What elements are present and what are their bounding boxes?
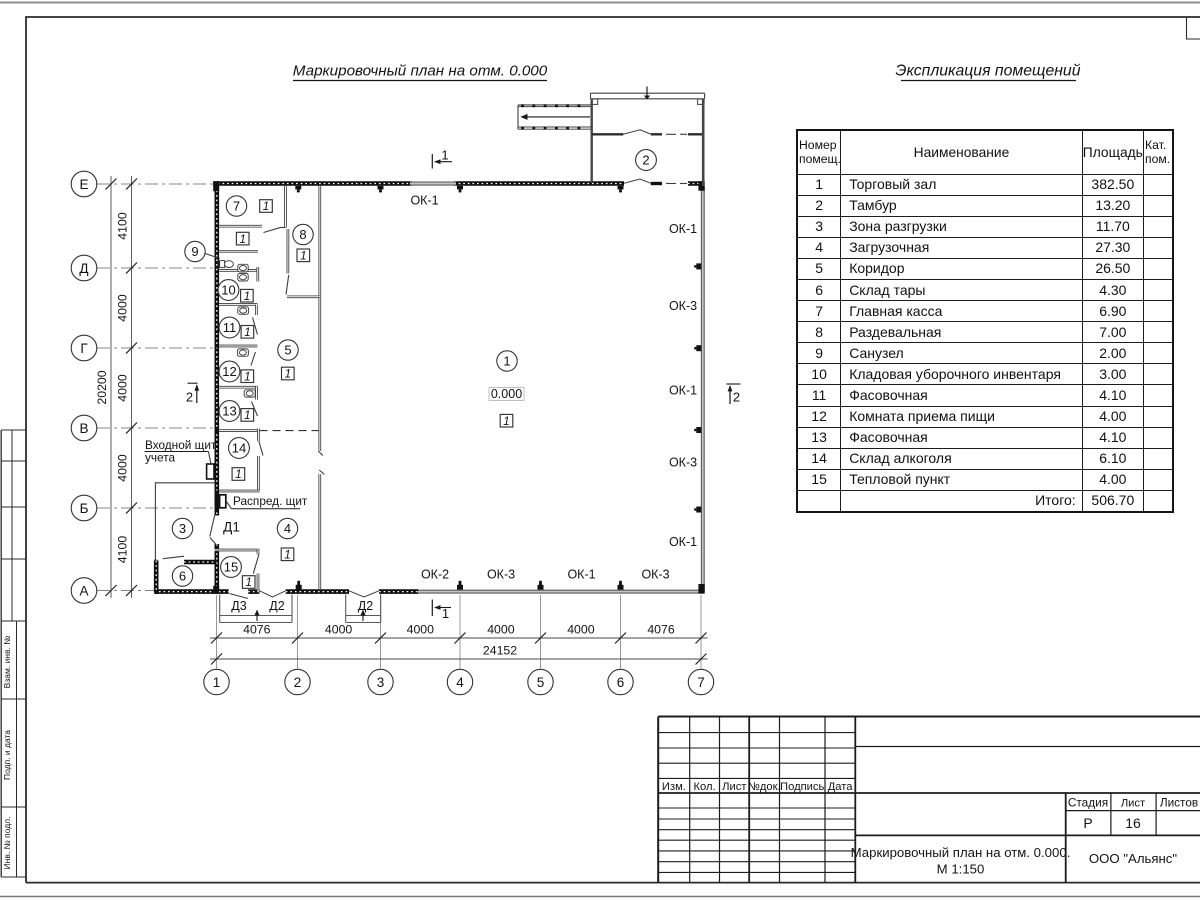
svg-text:1: 1 bbox=[300, 251, 306, 263]
svg-text:Г: Г bbox=[80, 341, 88, 356]
svg-text:ОК-1: ОК-1 bbox=[669, 384, 697, 398]
svg-text:10: 10 bbox=[221, 283, 235, 298]
svg-text:3: 3 bbox=[179, 521, 186, 536]
svg-text:1: 1 bbox=[244, 291, 250, 303]
svg-text:учета: учета bbox=[145, 451, 175, 465]
svg-text:Подпись: Подпись bbox=[780, 781, 824, 793]
svg-text:4000: 4000 bbox=[116, 454, 130, 482]
svg-text:ОК-1: ОК-1 bbox=[669, 535, 697, 549]
svg-text:Подп. и дата: Подп. и дата bbox=[2, 730, 12, 780]
svg-text:1: 1 bbox=[245, 577, 251, 589]
svg-text:24152: 24152 bbox=[483, 644, 517, 658]
svg-text:4000: 4000 bbox=[487, 623, 515, 637]
svg-text:ОК-1: ОК-1 bbox=[410, 194, 438, 208]
svg-text:6: 6 bbox=[617, 675, 625, 690]
svg-text:4000: 4000 bbox=[567, 623, 595, 637]
svg-text:5: 5 bbox=[537, 675, 545, 690]
svg-text:13: 13 bbox=[222, 404, 236, 419]
svg-text:1: 1 bbox=[284, 550, 290, 562]
svg-text:Д: Д bbox=[79, 261, 88, 276]
svg-text:Распред. щит: Распред. щит bbox=[233, 494, 308, 508]
svg-text:6: 6 bbox=[179, 569, 186, 584]
svg-text:ОК-1: ОК-1 bbox=[669, 222, 697, 236]
svg-text:Инв. № подл.: Инв. № подл. bbox=[2, 817, 12, 870]
svg-text:9: 9 bbox=[191, 244, 198, 259]
svg-text:11: 11 bbox=[223, 320, 237, 335]
svg-text:1: 1 bbox=[263, 201, 269, 213]
svg-text:ОК-3: ОК-3 bbox=[487, 568, 515, 582]
svg-text:ОК-3: ОК-3 bbox=[641, 568, 669, 582]
svg-text:М 1:150: М 1:150 bbox=[937, 862, 985, 877]
svg-text:4: 4 bbox=[456, 675, 464, 690]
svg-text:2: 2 bbox=[642, 153, 649, 168]
svg-text:2: 2 bbox=[733, 390, 740, 405]
svg-text:2: 2 bbox=[186, 390, 193, 405]
svg-text:1: 1 bbox=[244, 327, 250, 339]
svg-text:1: 1 bbox=[244, 410, 250, 422]
svg-text:ОК-3: ОК-3 bbox=[669, 456, 697, 470]
svg-text:Д1: Д1 bbox=[223, 520, 240, 535]
svg-text:8: 8 bbox=[299, 227, 306, 242]
svg-text:1: 1 bbox=[213, 675, 221, 690]
svg-text:4100: 4100 bbox=[116, 212, 130, 240]
svg-text:1: 1 bbox=[441, 148, 448, 163]
svg-text:4000: 4000 bbox=[325, 623, 353, 637]
svg-text:15: 15 bbox=[224, 560, 238, 575]
svg-text:Дата: Дата bbox=[828, 781, 854, 793]
svg-text:Изм.: Изм. bbox=[662, 781, 686, 793]
svg-text:0.000: 0.000 bbox=[491, 387, 522, 401]
svg-text:Д2: Д2 bbox=[269, 599, 284, 613]
svg-text:Лист: Лист bbox=[1121, 798, 1145, 810]
svg-text:Маркировочный план на отм. 0.0: Маркировочный план на отм. 0.000. bbox=[851, 845, 1071, 860]
svg-text:ОК-3: ОК-3 bbox=[669, 299, 697, 313]
svg-text:Листов: Листов bbox=[1160, 796, 1198, 810]
svg-text:4000: 4000 bbox=[116, 294, 130, 322]
svg-text:1: 1 bbox=[244, 371, 250, 383]
svg-text:Экспликация помещений: Экспликация помещений bbox=[895, 63, 1080, 80]
svg-text:Стадия: Стадия bbox=[1068, 796, 1108, 810]
svg-text:ОК-2: ОК-2 bbox=[421, 568, 449, 582]
svg-text:№док.: №док. bbox=[748, 781, 781, 793]
svg-text:2: 2 bbox=[294, 675, 302, 690]
svg-text:12: 12 bbox=[222, 364, 236, 379]
svg-text:Е: Е bbox=[79, 177, 88, 192]
svg-text:4100: 4100 bbox=[116, 536, 130, 564]
svg-text:1: 1 bbox=[239, 234, 245, 246]
svg-text:7: 7 bbox=[233, 199, 240, 214]
svg-text:4076: 4076 bbox=[647, 623, 675, 637]
svg-text:1: 1 bbox=[285, 369, 291, 381]
svg-text:Д3: Д3 bbox=[231, 599, 246, 613]
svg-text:5: 5 bbox=[284, 343, 291, 358]
svg-text:Лист: Лист bbox=[722, 781, 746, 793]
svg-text:1: 1 bbox=[503, 354, 510, 369]
svg-text:4000: 4000 bbox=[407, 623, 435, 637]
svg-text:Маркировочный план на отм. 0.0: Маркировочный план на отм. 0.000 bbox=[293, 63, 548, 80]
svg-text:ООО "Альянс": ООО "Альянс" bbox=[1089, 851, 1177, 866]
svg-text:Д2: Д2 bbox=[358, 599, 373, 613]
svg-text:В: В bbox=[79, 421, 88, 436]
svg-text:ОК-1: ОК-1 bbox=[567, 568, 595, 582]
svg-text:Б: Б bbox=[80, 501, 89, 516]
svg-text:1: 1 bbox=[235, 469, 241, 481]
svg-text:Р: Р bbox=[1083, 815, 1092, 831]
svg-text:4: 4 bbox=[284, 521, 291, 536]
svg-text:20200: 20200 bbox=[95, 370, 109, 404]
svg-text:4076: 4076 bbox=[243, 623, 271, 637]
svg-text:7: 7 bbox=[697, 675, 705, 690]
svg-text:Взам. инв. №: Взам. инв. № bbox=[2, 636, 12, 689]
svg-text:1: 1 bbox=[442, 606, 449, 621]
svg-text:3: 3 bbox=[377, 675, 385, 690]
svg-text:Кол.: Кол. bbox=[694, 781, 716, 793]
svg-text:4000: 4000 bbox=[116, 374, 130, 402]
svg-text:А: А bbox=[79, 584, 88, 599]
svg-text:1: 1 bbox=[503, 416, 509, 428]
svg-text:16: 16 bbox=[1125, 815, 1141, 831]
svg-text:14: 14 bbox=[232, 441, 246, 456]
